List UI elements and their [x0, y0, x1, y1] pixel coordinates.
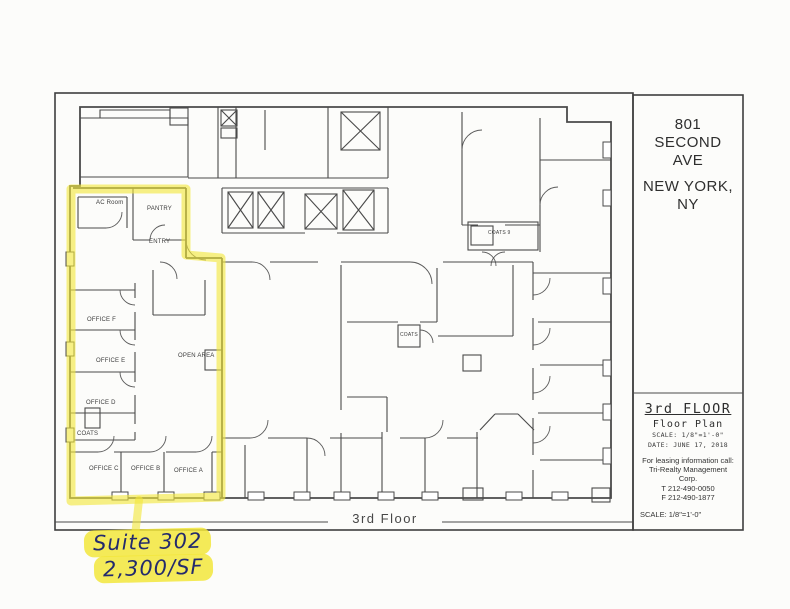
room-label-coats-mid: COATS: [400, 332, 418, 338]
floor-title: 3rd FLOOR: [633, 401, 743, 417]
city-line-2: NY: [633, 196, 743, 214]
drawing-frame: [55, 93, 633, 530]
east-rooms: [533, 262, 611, 498]
floor-caption: 3rd Floor: [330, 511, 440, 526]
leasing-fax: F 212-490-1877: [633, 493, 743, 502]
scale-note: SCALE: 1/8"=1'-0": [633, 431, 743, 439]
scanned-floor-plan-page: AC Room PANTRY ENTRY OFFICE F OFFICE E O…: [0, 0, 790, 609]
room-label-office-c: OFFICE C: [89, 466, 119, 472]
room-label-entry: ENTRY: [149, 239, 170, 245]
handwritten-square-footage: 2,300/SF: [94, 553, 213, 583]
city-line-1: NEW YORK,: [633, 178, 743, 196]
upper-right-rooms: [462, 112, 611, 266]
suite-highlight-outline: [71, 189, 221, 501]
address-line-1: 801: [633, 116, 743, 134]
central-corridor-walls: [222, 262, 534, 498]
room-label-ac-room: AC Room: [96, 200, 123, 206]
leasing-line-1: For leasing information call:: [633, 456, 743, 465]
suite-top-rooms: [78, 188, 222, 370]
window-sills: [66, 142, 611, 500]
elevator-shaft-top: [341, 112, 380, 150]
room-label-office-f: OFFICE F: [87, 317, 116, 323]
plan-subtitle: Floor Plan: [633, 419, 743, 430]
scale-footer: SCALE: 1/8"=1'-0": [633, 510, 750, 519]
room-label-coats: COATS: [77, 431, 98, 437]
room-label-office-b: OFFICE B: [131, 466, 160, 472]
top-left-rooms: [80, 107, 388, 178]
address-line-3: AVE: [633, 152, 743, 170]
room-label-office-a: OFFICE A: [174, 468, 203, 474]
date-note: DATE: JUNE 17, 2018: [633, 441, 743, 449]
room-label-open-area: OPEN AREA: [178, 353, 214, 359]
elevator-bank: [222, 188, 388, 233]
room-label-office-e: OFFICE E: [96, 358, 125, 364]
leasing-phone: T 212-490-0050: [633, 484, 743, 493]
leasing-line-2: Tri-Realty Management: [633, 465, 743, 474]
room-label-pantry: PANTRY: [147, 206, 172, 212]
bottom-rooms: [222, 420, 610, 502]
address-line-2: SECOND: [633, 134, 743, 152]
room-label-coats-9: COATS 9: [488, 230, 510, 236]
room-label-office-d: OFFICE D: [86, 400, 116, 406]
leasing-line-3: Corp.: [633, 474, 743, 483]
